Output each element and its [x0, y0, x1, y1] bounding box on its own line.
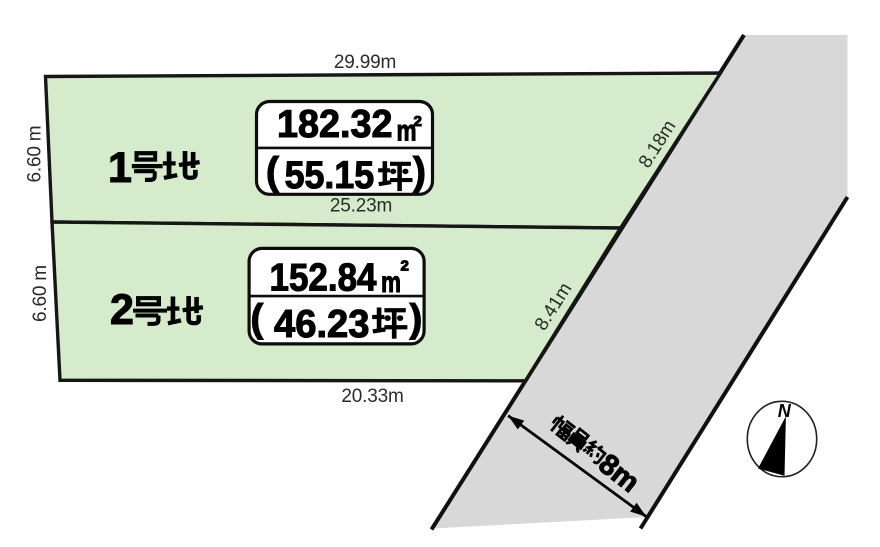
svg-text:): ) [413, 151, 426, 194]
svg-text:N: N [778, 401, 792, 421]
svg-text:1: 1 [108, 144, 132, 192]
svg-text:(: ( [251, 298, 264, 341]
svg-text:(: ( [266, 151, 279, 194]
svg-text:152.84: 152.84 [270, 257, 377, 300]
svg-text:46.23: 46.23 [274, 303, 370, 346]
svg-text:m: m [381, 266, 401, 299]
svg-text:6.60 m: 6.60 m [25, 126, 46, 183]
svg-text:6.60 m: 6.60 m [30, 265, 51, 322]
svg-text:25.23m: 25.23m [330, 196, 392, 217]
svg-text:): ) [410, 298, 423, 341]
svg-text:182.32: 182.32 [277, 103, 393, 146]
svg-text:2: 2 [414, 113, 422, 130]
svg-text:2: 2 [401, 258, 409, 275]
svg-text:20.33m: 20.33m [341, 386, 403, 407]
svg-text:55.15: 55.15 [285, 154, 375, 197]
svg-text:29.99m: 29.99m [334, 52, 396, 73]
svg-text:2: 2 [110, 286, 134, 334]
